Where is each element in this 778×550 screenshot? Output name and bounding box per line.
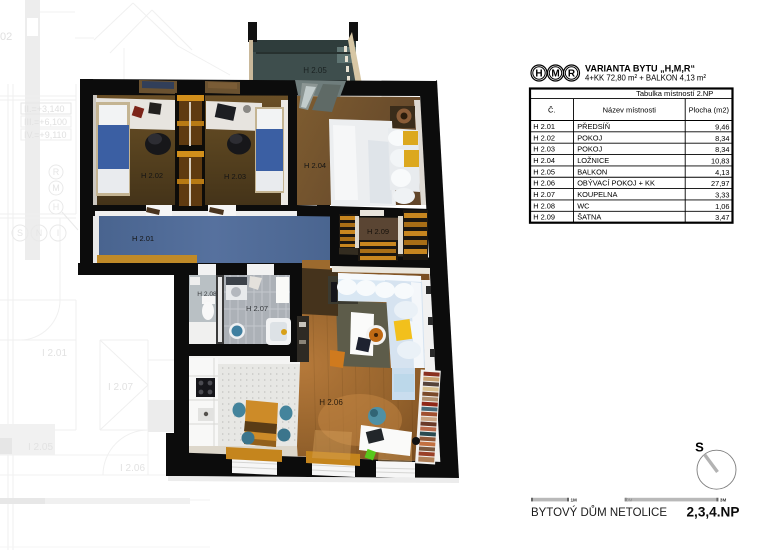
svg-text:IV.=+9,110: IV.=+9,110: [24, 130, 67, 140]
svg-text:10,83: 10,83: [711, 156, 730, 165]
svg-text:I 2.07: I 2.07: [108, 382, 133, 393]
svg-text:H 2.06: H 2.06: [319, 398, 343, 407]
svg-text:S: S: [17, 228, 23, 238]
svg-text:H 2.06: H 2.06: [533, 179, 555, 188]
svg-text:BYTOVÝ DŮM NETOLICE: BYTOVÝ DŮM NETOLICE: [531, 504, 667, 519]
svg-text:H 2.08: H 2.08: [197, 291, 217, 298]
svg-text:H: H: [535, 69, 542, 80]
svg-text:Tabulka místností 2.NP: Tabulka místností 2.NP: [636, 89, 713, 98]
svg-text:OBÝVACÍ POKOJ + KK: OBÝVACÍ POKOJ + KK: [577, 179, 655, 188]
svg-text:02: 02: [0, 31, 12, 43]
svg-text:0M: 0M: [627, 497, 633, 502]
svg-text:III.=+6,100: III.=+6,100: [24, 117, 67, 127]
svg-text:R: R: [568, 69, 576, 80]
svg-text:H 2.08: H 2.08: [533, 201, 555, 210]
svg-text:H 2.09: H 2.09: [533, 213, 555, 222]
svg-text:KOUPELNA: KOUPELNA: [577, 190, 617, 199]
svg-text:II.=+3,140: II.=+3,140: [24, 104, 65, 114]
svg-text:H 2.07: H 2.07: [533, 190, 555, 199]
svg-text:Č.: Č.: [548, 106, 556, 115]
svg-text:R: R: [53, 167, 60, 177]
svg-text:S: S: [695, 440, 704, 455]
svg-text:H 2.01: H 2.01: [132, 234, 154, 243]
svg-text:1,06: 1,06: [715, 202, 729, 211]
svg-text:1M: 1M: [571, 498, 578, 503]
svg-text:2,3,4.NP: 2,3,4.NP: [687, 504, 740, 519]
svg-text:N: N: [36, 228, 43, 238]
svg-text:H 2.05: H 2.05: [303, 66, 327, 75]
svg-text:H 2.03: H 2.03: [533, 145, 555, 154]
svg-text:H 2.05: H 2.05: [533, 167, 555, 176]
svg-text:BALKON: BALKON: [577, 167, 607, 176]
svg-text:LOŽNICE: LOŽNICE: [577, 156, 609, 165]
svg-text:M: M: [551, 69, 559, 80]
svg-text:Název místnosti: Název místnosti: [603, 106, 657, 115]
svg-text:I 2.06: I 2.06: [120, 463, 145, 474]
svg-text:H 2.09: H 2.09: [367, 227, 389, 236]
svg-text:PŘEDSÍŇ: PŘEDSÍŇ: [577, 122, 610, 131]
svg-text:4,13: 4,13: [715, 168, 729, 177]
svg-text:H 2.02: H 2.02: [533, 133, 555, 142]
svg-text:I: I: [57, 228, 60, 238]
svg-text:ŠATNA: ŠATNA: [577, 213, 601, 222]
svg-text:8,34: 8,34: [715, 145, 729, 154]
svg-text:H 2.01: H 2.01: [533, 122, 555, 131]
svg-text:I 2.05: I 2.05: [28, 442, 53, 453]
svg-text:27,97: 27,97: [711, 179, 730, 188]
svg-text:3M: 3M: [720, 498, 727, 503]
svg-text:H 2.04: H 2.04: [304, 161, 326, 170]
svg-text:9,46: 9,46: [715, 122, 729, 131]
svg-text:3,33: 3,33: [715, 191, 729, 200]
svg-text:POKOJ: POKOJ: [577, 145, 602, 154]
svg-text:H 2.02: H 2.02: [141, 171, 163, 180]
svg-text:POKOJ: POKOJ: [577, 133, 602, 142]
svg-text:H: H: [53, 202, 60, 212]
svg-text:H 2.04: H 2.04: [533, 156, 555, 165]
svg-text:4+KK 72,80 m² + BALKON 4,13 m²: 4+KK 72,80 m² + BALKON 4,13 m²: [585, 73, 706, 83]
svg-text:3,47: 3,47: [715, 213, 729, 222]
svg-text:8,34: 8,34: [715, 134, 729, 143]
svg-text:M: M: [52, 183, 60, 193]
svg-text:WC: WC: [577, 201, 590, 210]
svg-text:H 2.07: H 2.07: [246, 304, 268, 313]
svg-text:Plocha (m2): Plocha (m2): [689, 106, 730, 115]
svg-text:I 2.01: I 2.01: [42, 348, 67, 359]
svg-text:H 2.03: H 2.03: [224, 172, 246, 181]
